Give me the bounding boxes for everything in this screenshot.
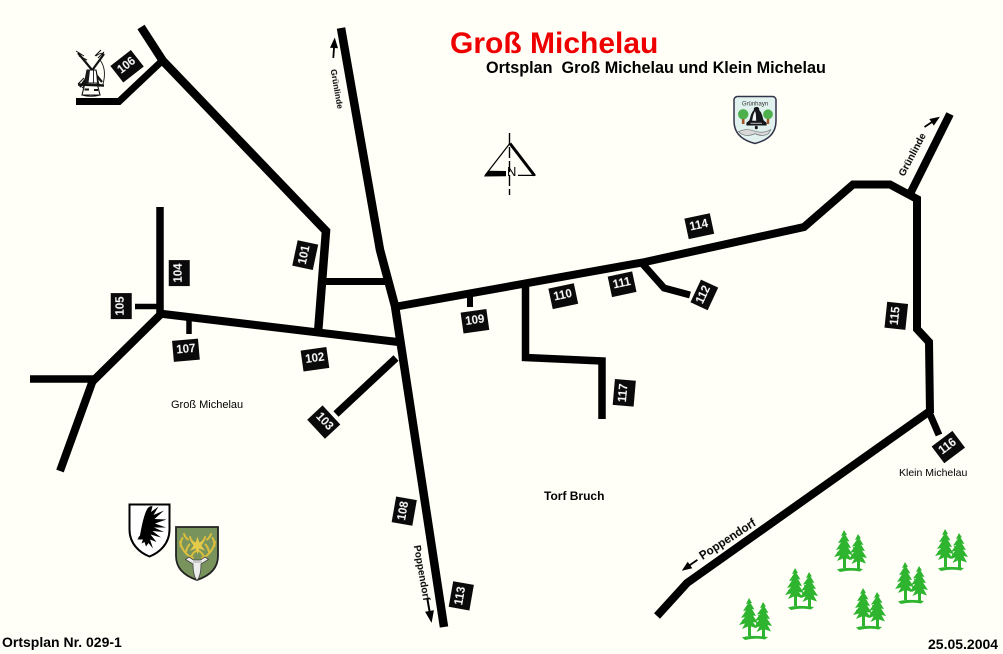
svg-text:Grünhayn: Grünhayn bbox=[742, 102, 768, 108]
svg-text:N: N bbox=[507, 164, 516, 179]
